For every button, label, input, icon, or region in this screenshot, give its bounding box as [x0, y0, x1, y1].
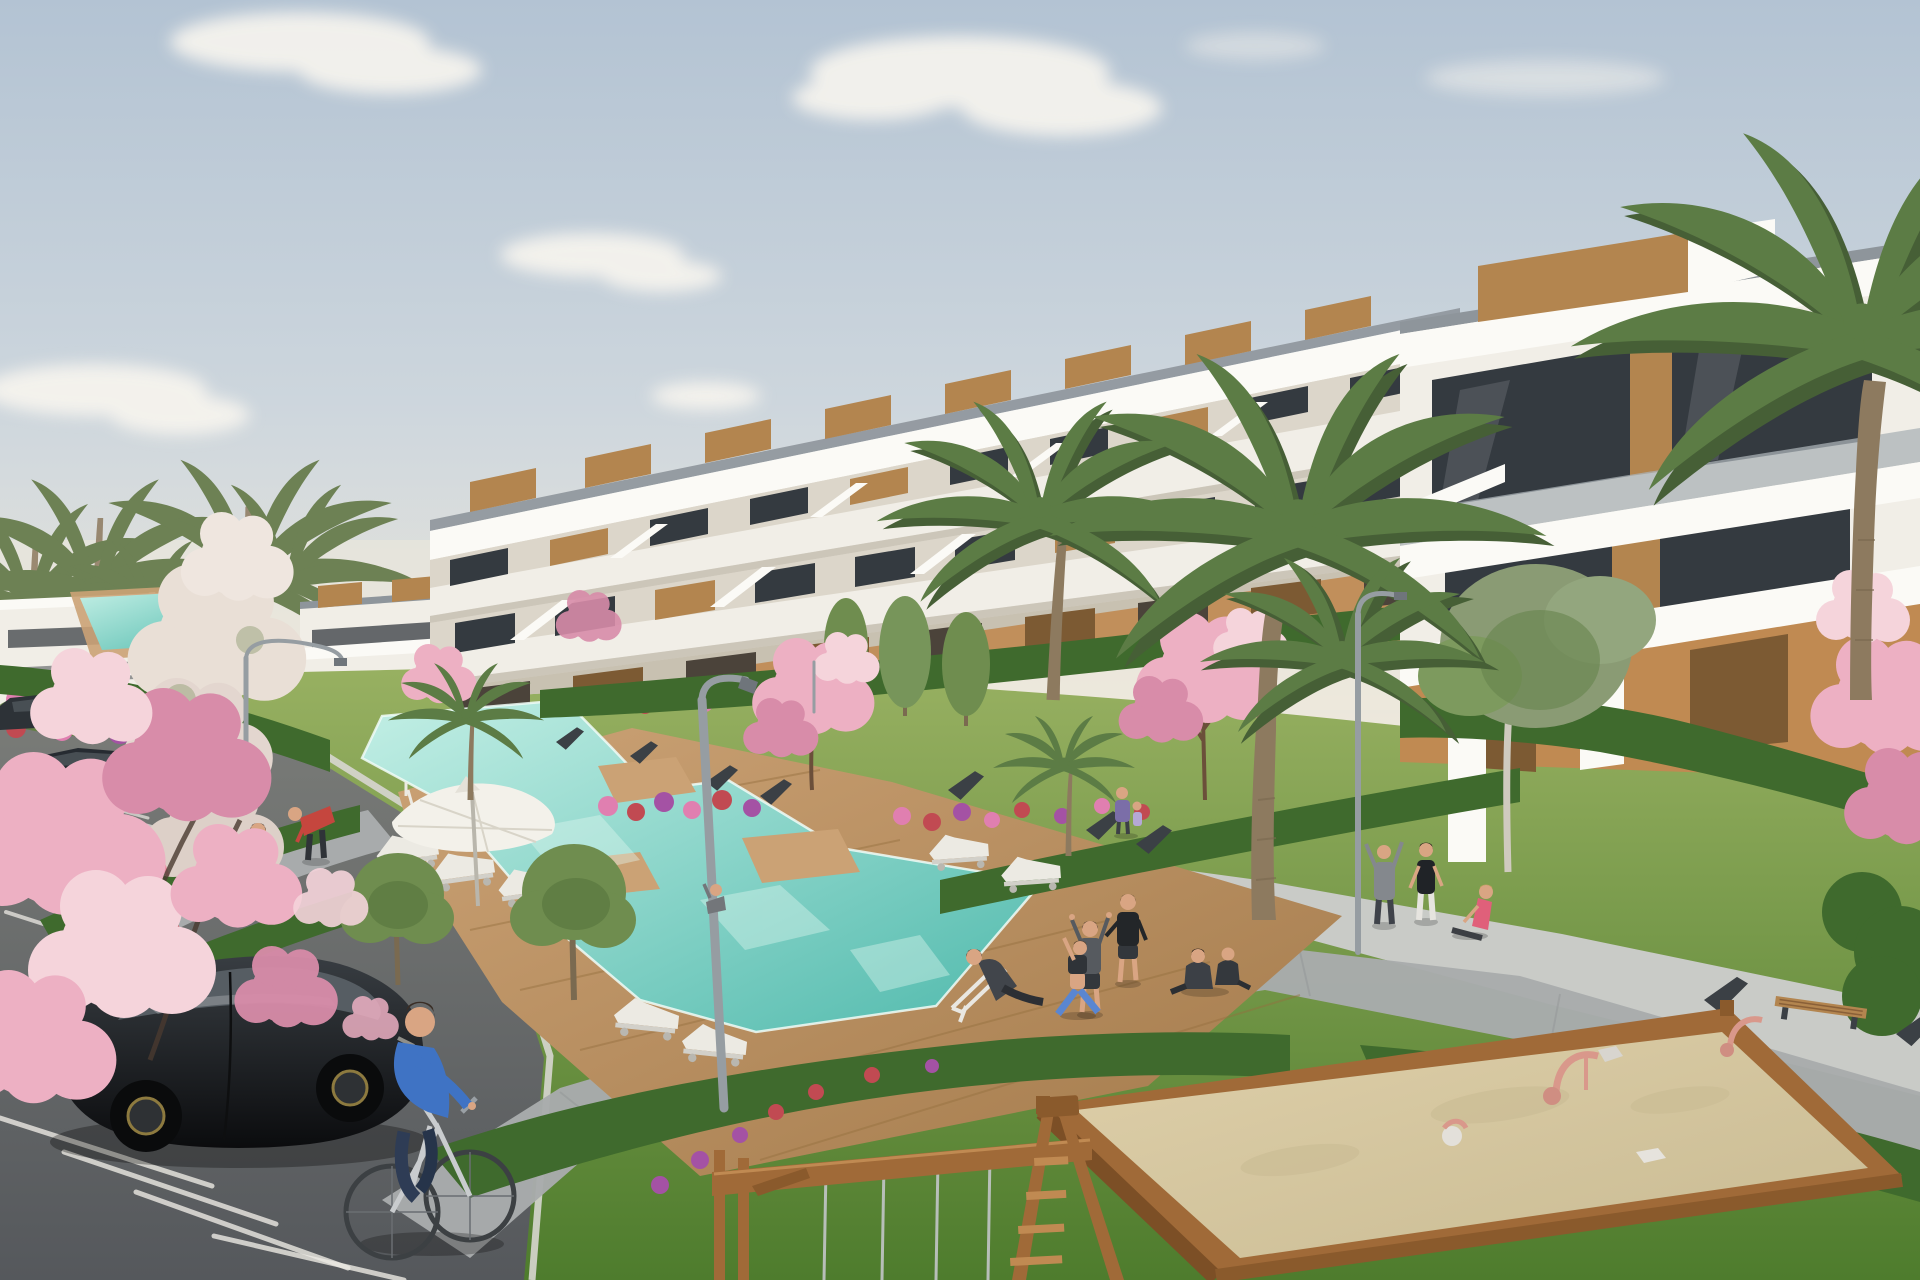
roof-pergola — [392, 576, 436, 602]
render-image — [0, 0, 1920, 1280]
roof-pergola — [318, 582, 362, 608]
scene-canvas — [0, 0, 1920, 1280]
